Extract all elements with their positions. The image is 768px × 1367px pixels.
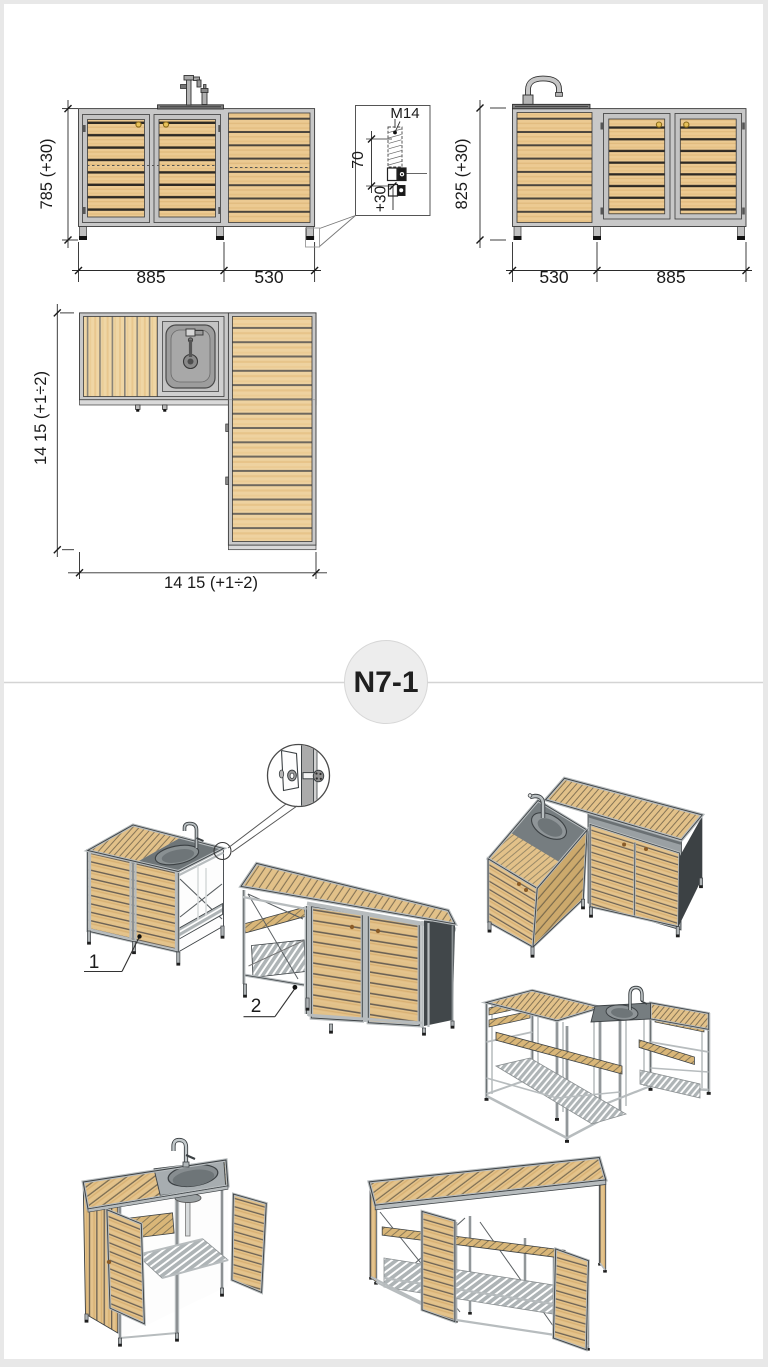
svg-text:+30: +30 — [373, 185, 390, 212]
svg-text:885: 885 — [656, 267, 685, 287]
svg-text:530: 530 — [539, 267, 568, 287]
svg-text:825 (+30): 825 (+30) — [453, 138, 471, 209]
svg-text:N7-1: N7-1 — [353, 666, 418, 699]
svg-text:2: 2 — [251, 996, 262, 1017]
svg-text:885: 885 — [136, 267, 165, 287]
svg-text:1: 1 — [89, 952, 100, 973]
svg-text:70: 70 — [350, 151, 367, 169]
svg-text:M14: M14 — [390, 105, 419, 122]
svg-text:14 15 (+1÷2): 14 15 (+1÷2) — [164, 574, 258, 592]
svg-text:14 15 (+1÷2): 14 15 (+1÷2) — [32, 371, 50, 465]
svg-text:530: 530 — [254, 267, 283, 287]
svg-text:785 (+30): 785 (+30) — [38, 138, 56, 209]
